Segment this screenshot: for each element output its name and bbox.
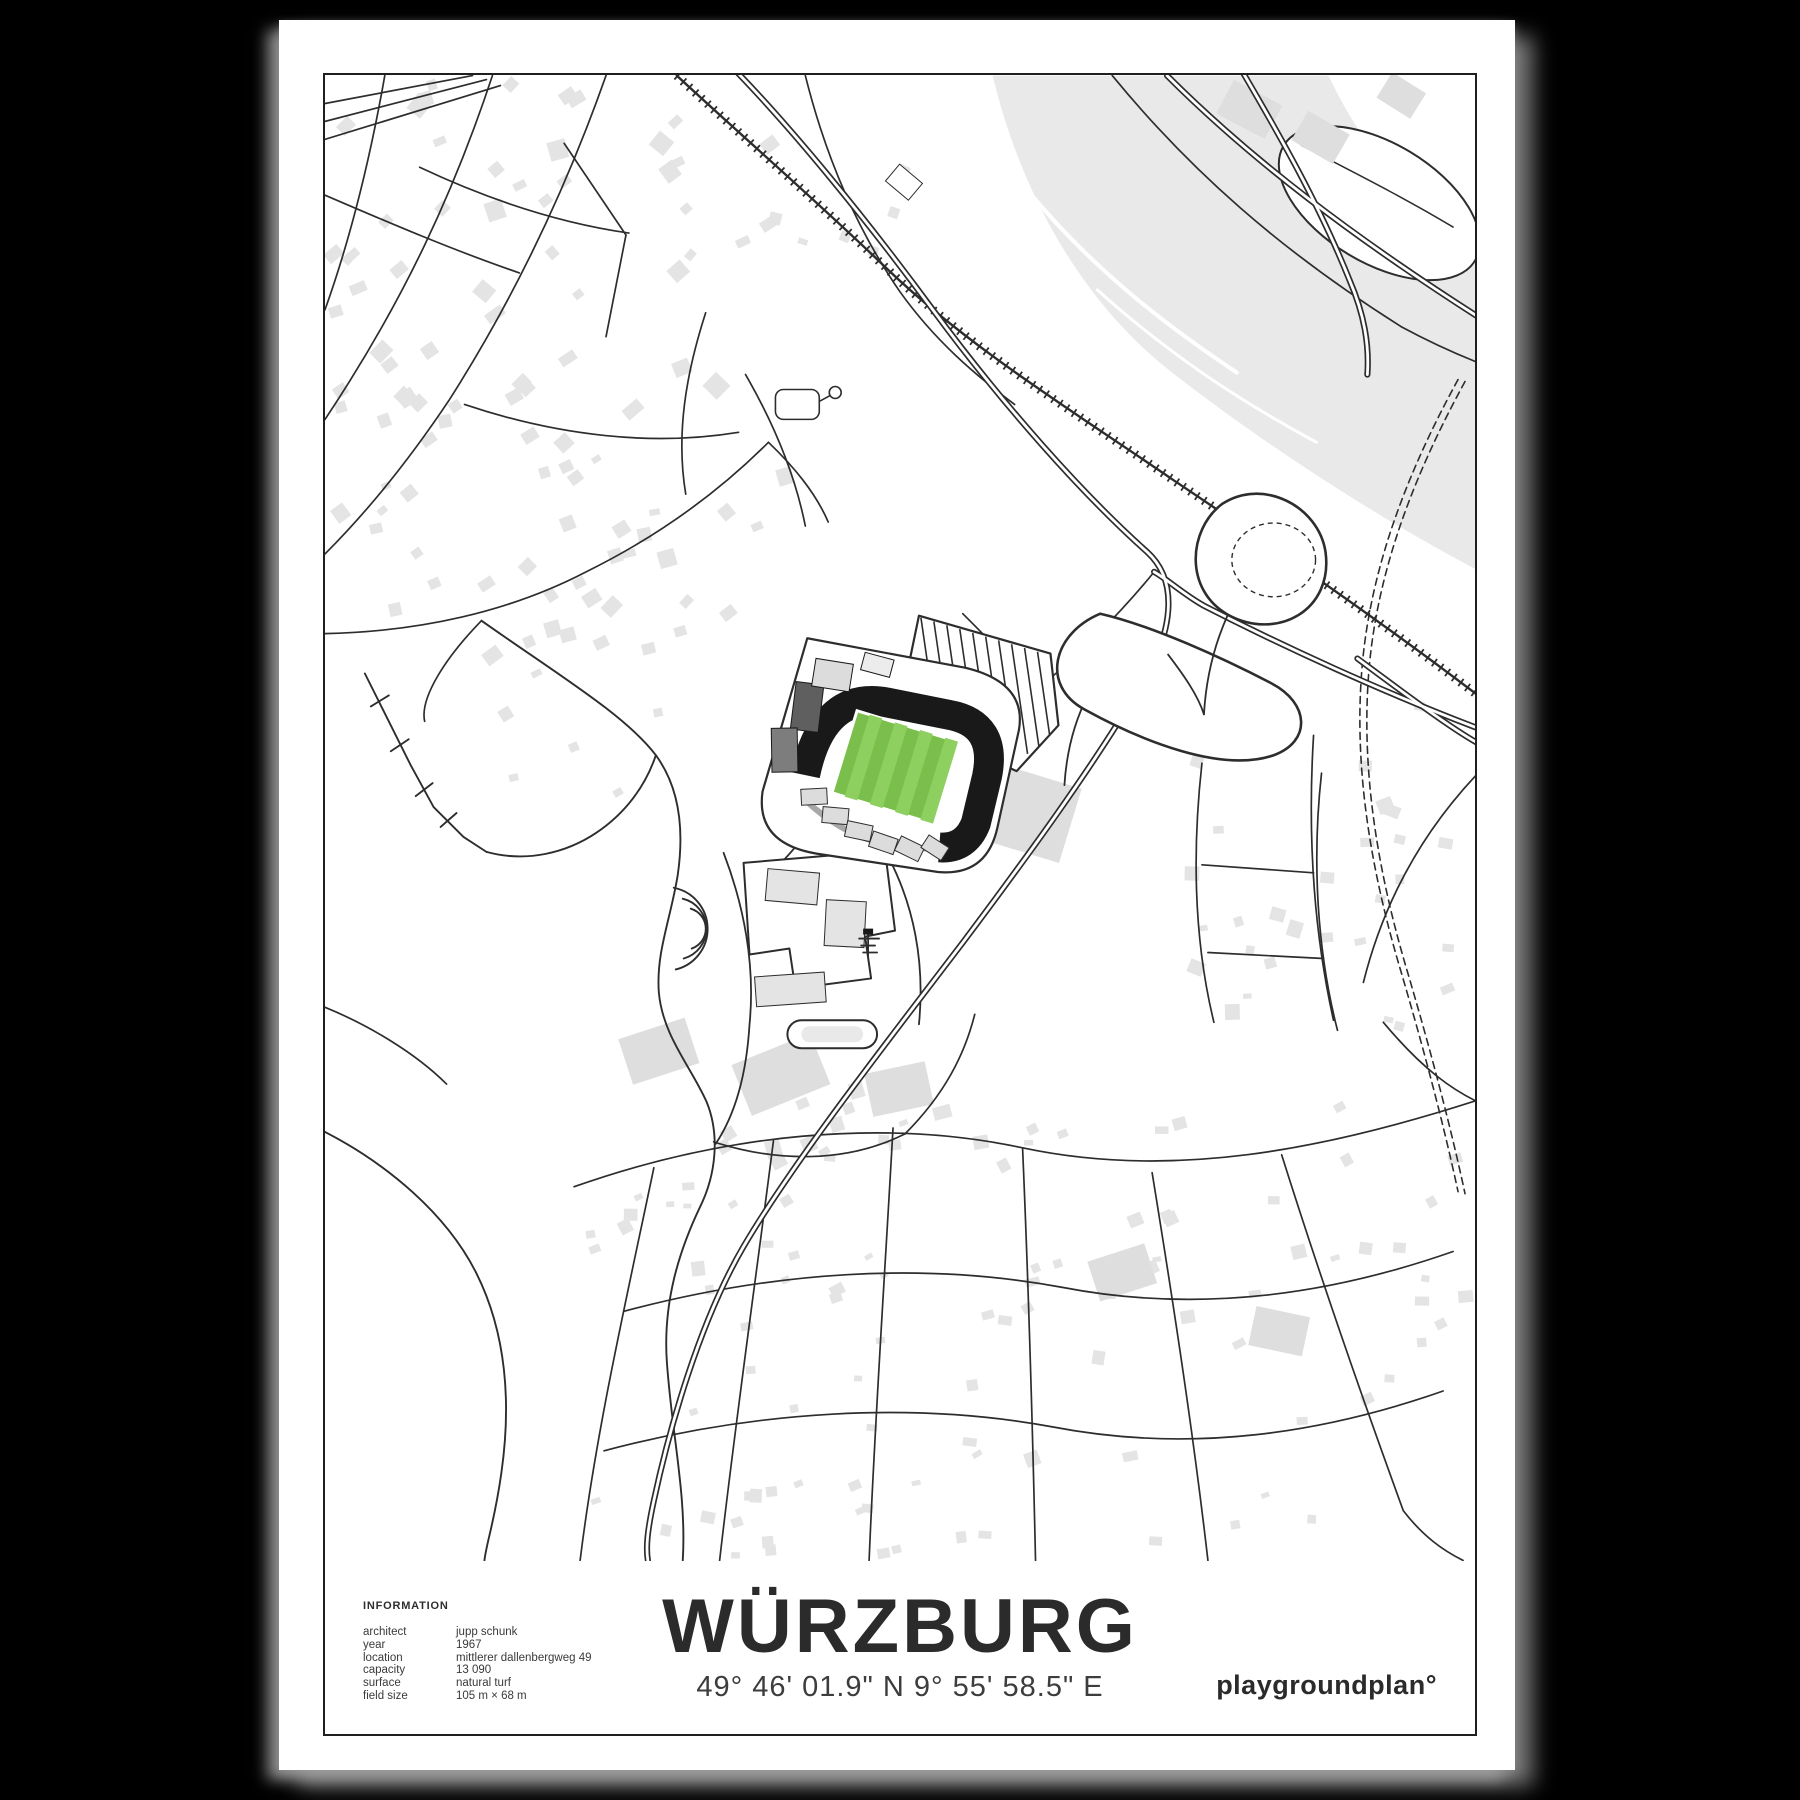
page-background: { "poster": { "title": "WÜRZBURG", "coor…: [0, 0, 1800, 1800]
stadium-poster: INFORMATION architectjupp schunkyear1967…: [279, 20, 1515, 1770]
poster-frame: INFORMATION architectjupp schunkyear1967…: [323, 73, 1477, 1736]
brand-logo: playgroundplan°: [1216, 1672, 1437, 1699]
poster-title: WÜRZBURG: [325, 1589, 1475, 1665]
city-map-art: [325, 75, 1475, 1561]
